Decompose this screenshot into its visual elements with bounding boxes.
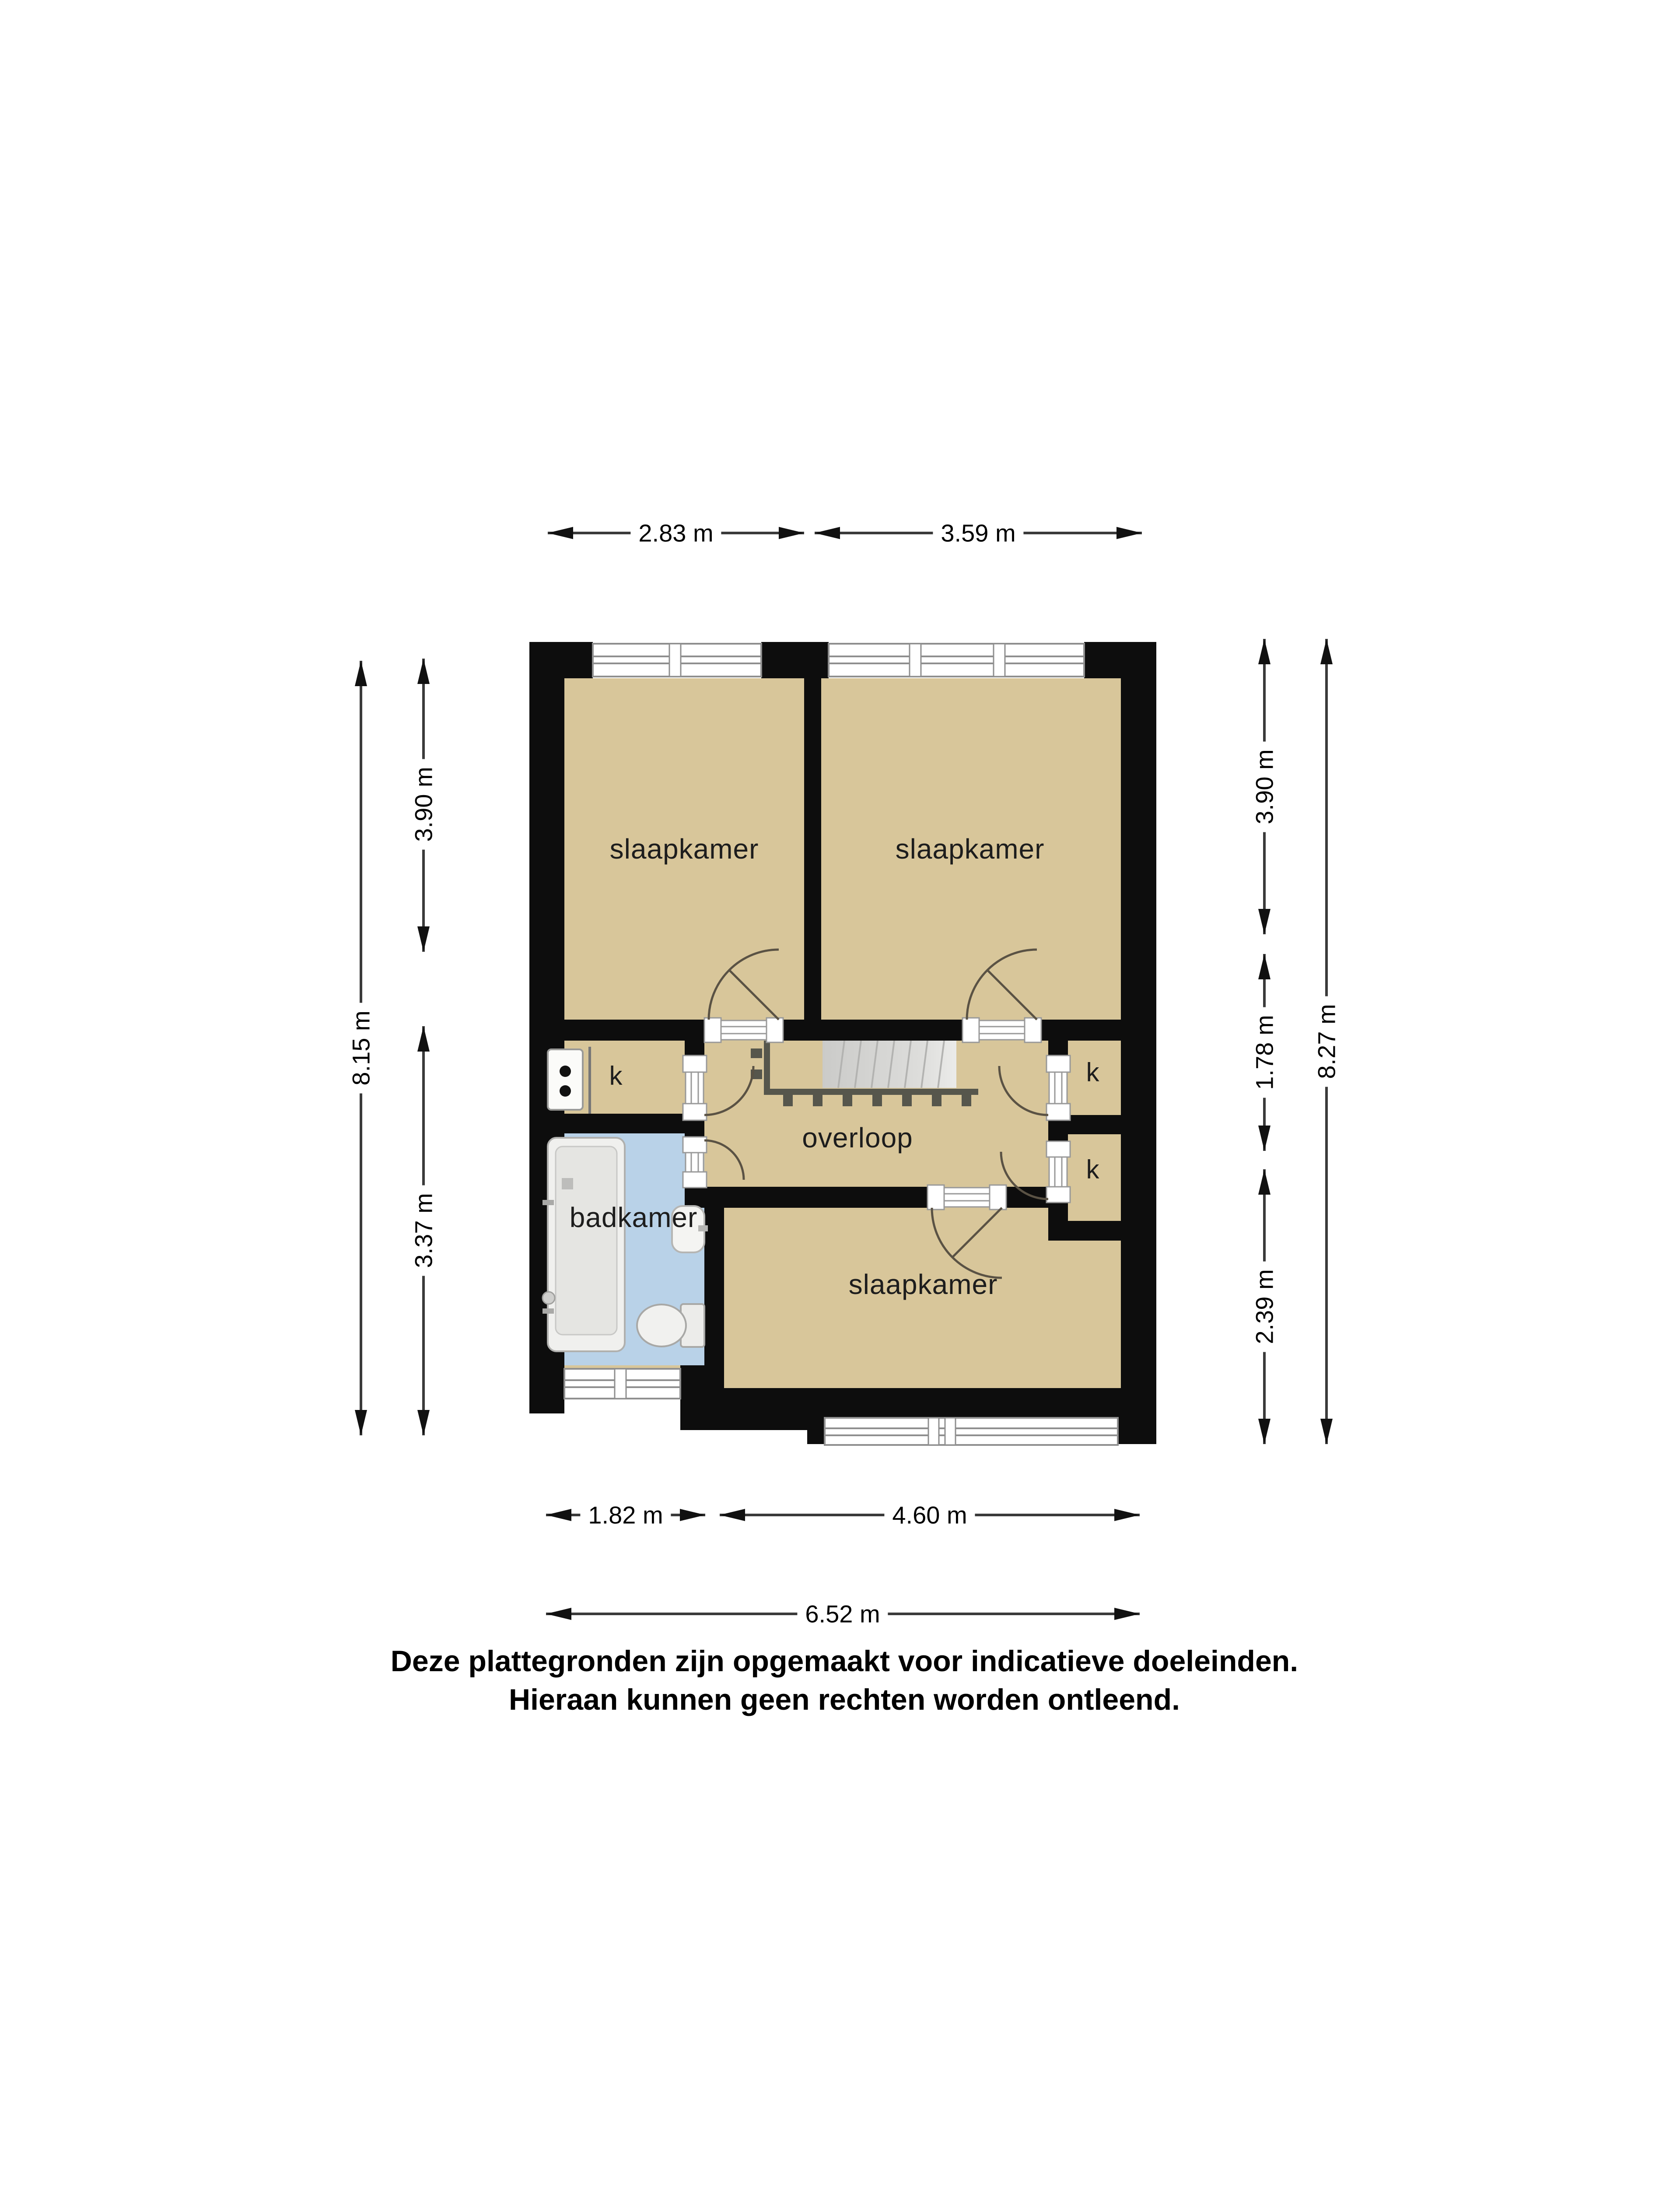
window-icon xyxy=(825,1418,1118,1445)
floorplan-page: slaapkamer slaapkamer slaapkamer badkame… xyxy=(0,0,1680,2188)
toilet-icon xyxy=(637,1304,704,1347)
floor-plan xyxy=(0,0,1680,2188)
dim-left-inner-bottom: 3.37 m xyxy=(409,1185,438,1276)
dim-top-right: 3.59 m xyxy=(933,519,1023,547)
room-label-closet-right-bottom: k xyxy=(1086,1154,1100,1185)
dim-right-inner-top: 3.90 m xyxy=(1250,741,1279,832)
room-label-closet-right-top: k xyxy=(1086,1057,1100,1087)
room-label-bathroom: badkamer xyxy=(570,1201,698,1234)
window-icon xyxy=(829,644,1084,677)
room-label-landing: overloop xyxy=(802,1122,913,1154)
window-icon xyxy=(564,1369,680,1399)
dim-left-inner-top: 3.90 m xyxy=(409,759,438,849)
dim-bottom-left: 1.82 m xyxy=(580,1501,671,1529)
dim-right-outer: 8.27 m xyxy=(1312,996,1341,1087)
disclaimer: Deze plattegronden zijn opgemaakt voor i… xyxy=(391,1642,1298,1719)
boiler-icon xyxy=(548,1047,590,1114)
room-label-bedroom-top-right: slaapkamer xyxy=(896,833,1045,865)
bathtub-icon xyxy=(542,1138,625,1351)
dim-top-left: 2.83 m xyxy=(630,519,721,547)
dim-bottom-right: 4.60 m xyxy=(884,1501,975,1529)
disclaimer-line-2: Hieraan kunnen geen rechten worden ontle… xyxy=(391,1680,1298,1719)
room-label-bedroom-bottom: slaapkamer xyxy=(849,1268,998,1301)
disclaimer-line-1: Deze plattegronden zijn opgemaakt voor i… xyxy=(391,1642,1298,1680)
dim-left-outer: 8.15 m xyxy=(347,1003,375,1093)
stairs-icon xyxy=(822,1041,956,1088)
room-label-closet-left: k xyxy=(609,1061,623,1091)
dim-bottom-outer: 6.52 m xyxy=(797,1600,888,1628)
dim-right-inner-middle: 1.78 m xyxy=(1250,1007,1279,1098)
dim-right-inner-bottom: 2.39 m xyxy=(1250,1261,1279,1352)
room-label-bedroom-top-left: slaapkamer xyxy=(610,833,759,865)
window-icon xyxy=(593,644,761,677)
